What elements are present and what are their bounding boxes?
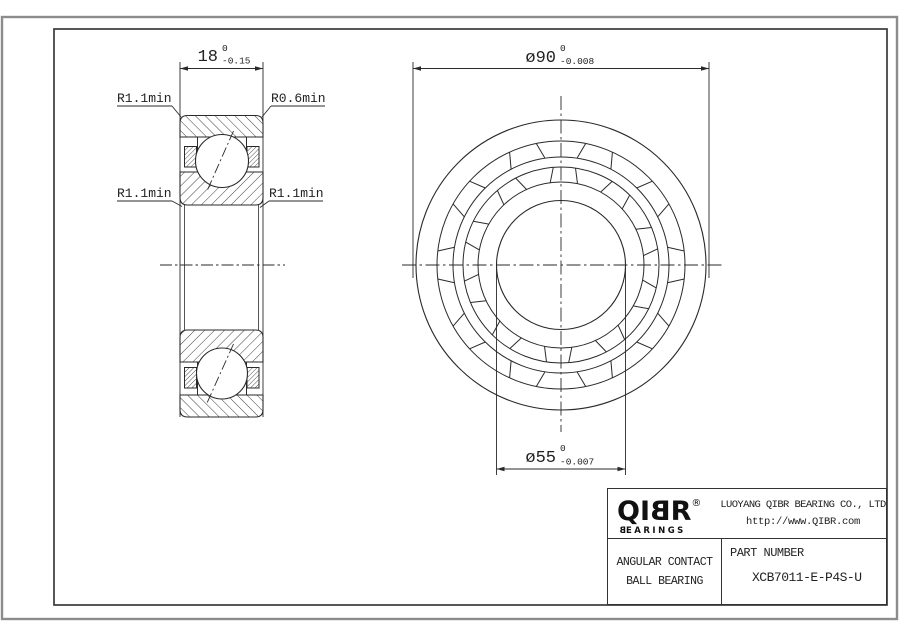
cage-section-right-bottom (247, 368, 259, 389)
ball-top (196, 135, 249, 188)
product-line1: ANGULAR CONTACT (616, 556, 712, 569)
outer-diameter-tol-upper: 0 (560, 43, 566, 54)
part-number-value: XCB7011-E-P4S-U (752, 570, 886, 585)
product-type-cell: ANGULAR CONTACT BALL BEARING (608, 539, 722, 605)
section-top-half (180, 116, 263, 206)
arrow-left (180, 66, 188, 71)
logo-tagline: BEARINGS (617, 526, 720, 536)
drawing-sheet: 18 0 -0.15 R1.1min R0.6min R1.1min R1.1m… (0, 0, 900, 636)
section-view (117, 62, 325, 417)
arrow-left (497, 467, 505, 472)
front-view (402, 62, 722, 475)
part-number-label: PART NUMBER (730, 546, 886, 560)
outer-diameter-value: ø90 (525, 49, 556, 68)
outer-ring-section (180, 116, 263, 138)
dim-width (180, 66, 263, 71)
company-name: LUOYANG QIBR BEARING CO., LTD (720, 499, 886, 511)
radius-label-top-left: R1.1min (117, 91, 172, 106)
section-bottom-half (180, 330, 263, 417)
product-line2: BALL BEARING (626, 575, 703, 588)
ball-bottom (197, 348, 248, 399)
company-info: LUOYANG QIBR BEARING CO., LTD http://www… (720, 499, 886, 528)
radius-label-bottom-right: R1.1min (269, 186, 324, 201)
bore-diameter-tol-lower: -0.007 (560, 457, 594, 468)
width-value: 18 (198, 48, 218, 67)
arrow-right (618, 467, 626, 472)
arrow-right (701, 66, 709, 71)
bore-diameter-tol-upper: 0 (560, 443, 566, 454)
title-block-header-row: QIBR® BEARINGS LUOYANG QIBR BEARING CO.,… (608, 489, 886, 539)
registered-mark: ® (691, 498, 701, 509)
logo-b-mirrored: B (650, 499, 671, 525)
tagline-rest: EARINGS (626, 526, 686, 536)
tagline-b-mirrored: B (617, 526, 626, 536)
arrow-right (255, 66, 263, 71)
outer-diameter-tol-lower: -0.008 (560, 56, 595, 67)
cage-section-left-bottom (185, 368, 197, 389)
logo-wordmark: QIBR® (617, 491, 720, 525)
company-logo: QIBR® BEARINGS (608, 491, 720, 536)
bore-diameter-value: ø55 (525, 449, 556, 468)
company-website: http://www.QIBR.com (720, 516, 886, 528)
cage-section-left (185, 147, 197, 168)
part-number-cell: PART NUMBER XCB7011-E-P4S-U (722, 539, 886, 605)
title-block-detail-row: ANGULAR CONTACT BALL BEARING PART NUMBER… (608, 539, 886, 605)
radius-label-bottom-left: R1.1min (117, 186, 172, 201)
title-block: QIBR® BEARINGS LUOYANG QIBR BEARING CO.,… (607, 488, 887, 605)
logo-r: R (671, 496, 692, 527)
arrow-left (413, 66, 421, 71)
width-tol-upper: 0 (222, 43, 228, 54)
radius-label-top-right: R0.6min (271, 91, 326, 106)
width-tol-lower: -0.15 (222, 56, 251, 67)
logo-qi: QI (617, 496, 650, 527)
